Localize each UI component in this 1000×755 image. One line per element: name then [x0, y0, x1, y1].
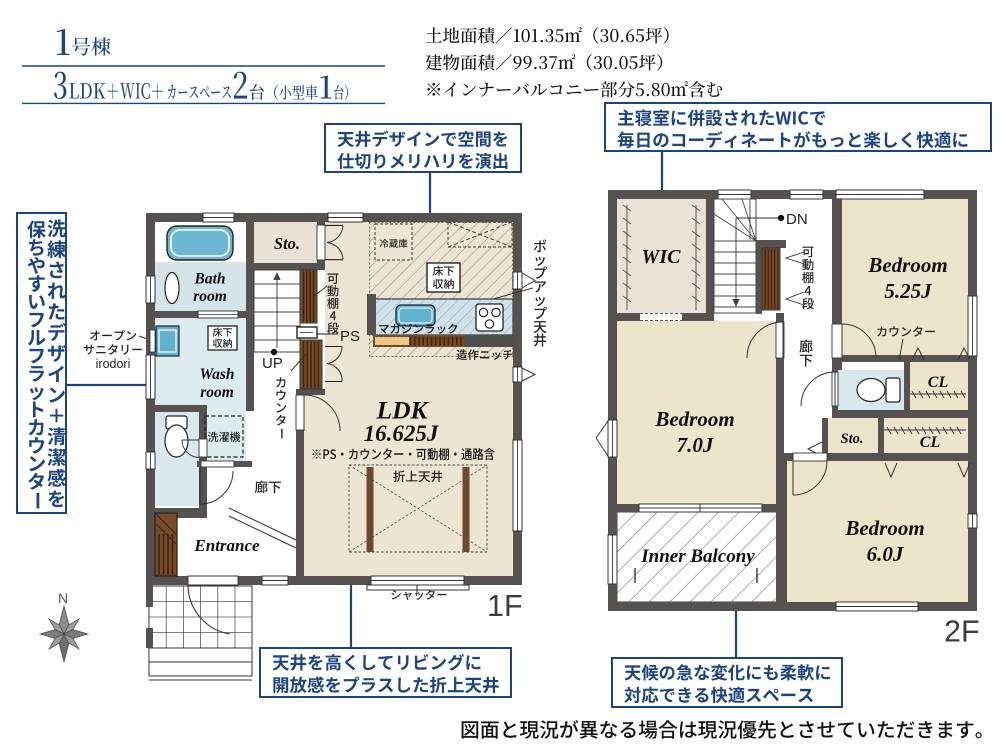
svg-text:6.0J: 6.0J — [867, 542, 905, 566]
svg-text:Bath: Bath — [193, 271, 225, 288]
svg-text:Sto.: Sto. — [841, 431, 864, 447]
svg-text:PS: PS — [340, 328, 360, 345]
svg-text:1F: 1F — [487, 589, 523, 623]
svg-text:16.625J: 16.625J — [364, 421, 440, 446]
svg-text:DN: DN — [786, 211, 808, 228]
svg-text:7.0J: 7.0J — [677, 433, 715, 457]
svg-text:CL: CL — [928, 374, 949, 391]
svg-text:Bedroom: Bedroom — [867, 253, 947, 277]
svg-text:Entrance: Entrance — [193, 536, 260, 555]
svg-text:Sto.: Sto. — [274, 234, 300, 253]
svg-text:room: room — [200, 384, 234, 401]
svg-text:UP: UP — [262, 355, 283, 372]
svg-text:room: room — [193, 288, 227, 305]
svg-text:irodori: irodori — [96, 357, 131, 371]
svg-text:CL: CL — [920, 434, 941, 451]
svg-text:Bedroom: Bedroom — [844, 516, 924, 540]
svg-text:Wash: Wash — [199, 366, 234, 383]
svg-text:Bedroom: Bedroom — [654, 407, 734, 431]
svg-text:5.25J: 5.25J — [884, 279, 933, 303]
svg-text:2F: 2F — [944, 615, 980, 649]
svg-text:Inner Balcony: Inner Balcony — [640, 546, 755, 567]
svg-text:WIC: WIC — [642, 246, 682, 268]
svg-text:N: N — [58, 590, 68, 606]
